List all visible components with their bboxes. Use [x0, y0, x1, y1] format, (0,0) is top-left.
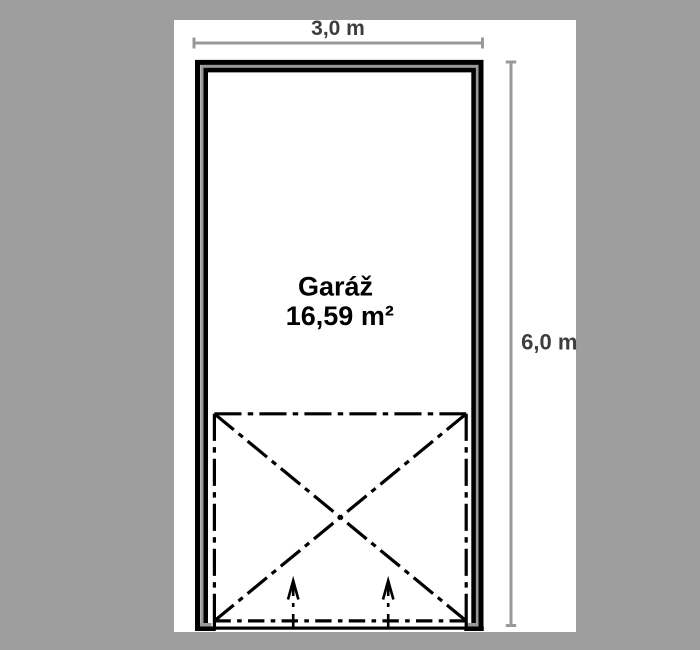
svg-text:Garáž: Garáž	[298, 272, 373, 302]
svg-text:16,59 m²: 16,59 m²	[286, 301, 394, 331]
svg-text:3,0 m: 3,0 m	[311, 17, 365, 40]
svg-text:6,0 m: 6,0 m	[521, 330, 577, 355]
